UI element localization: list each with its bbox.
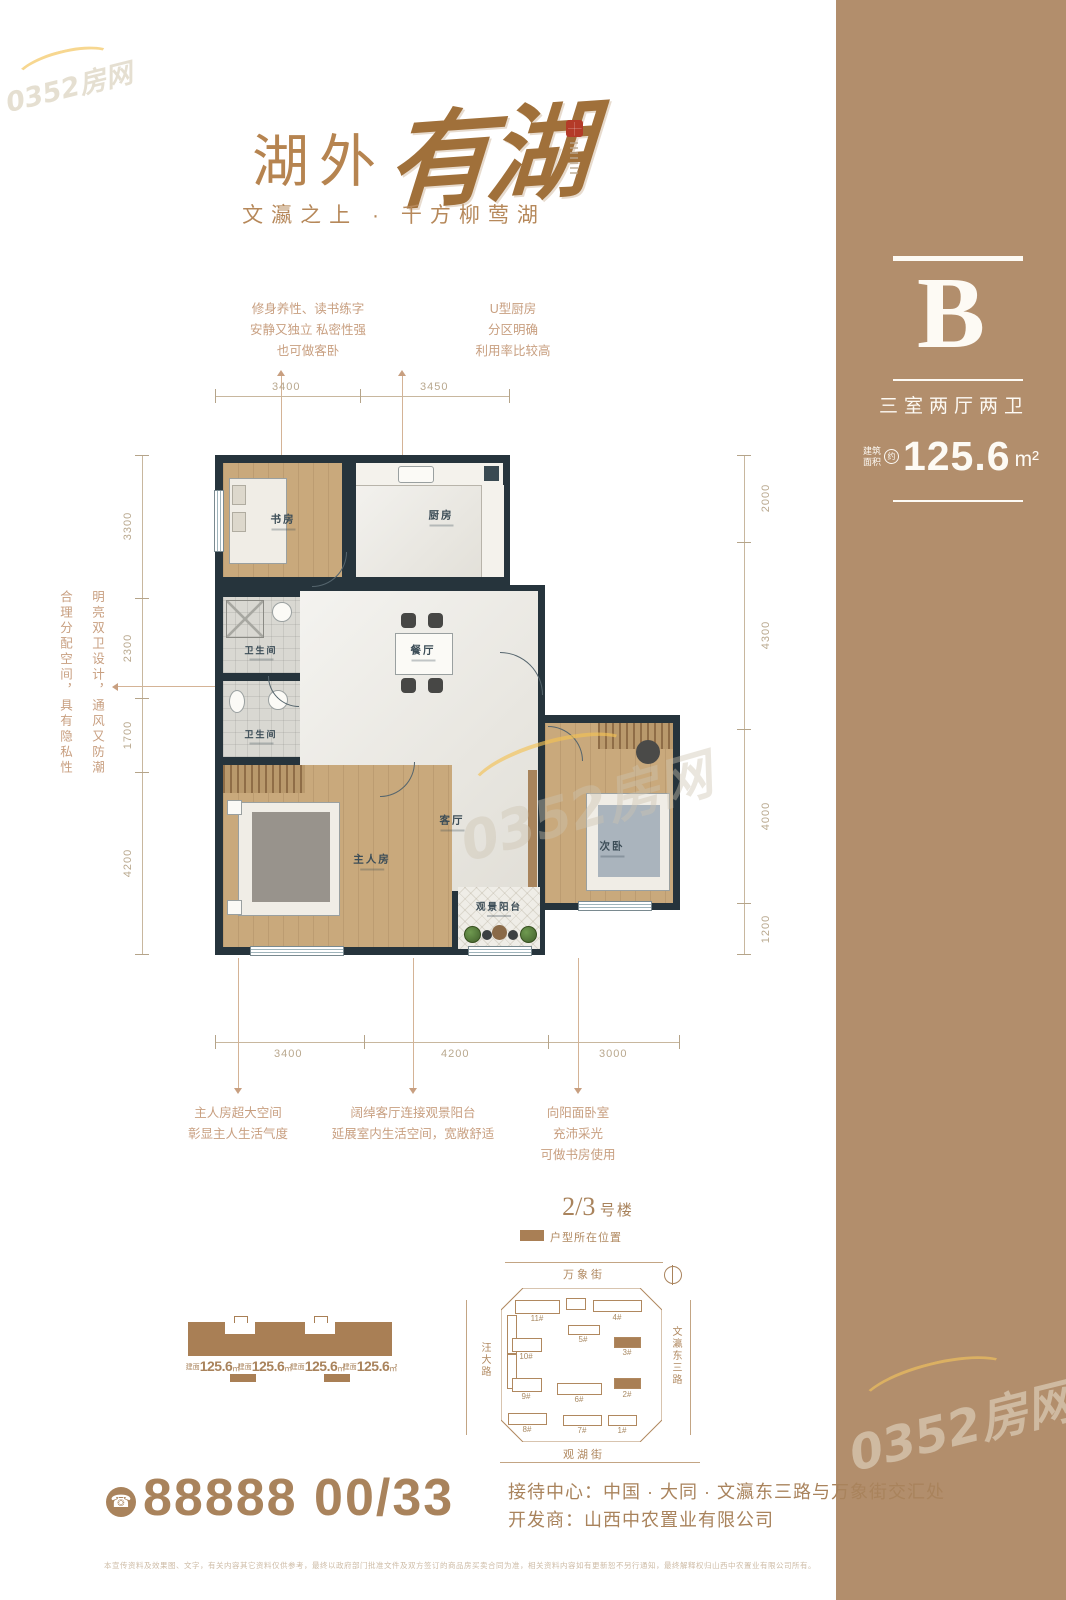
building: [508, 1413, 547, 1425]
dim-right-3: 1200: [760, 915, 772, 943]
annotation-line: 利用率比较高: [448, 341, 578, 362]
blanket: [252, 812, 330, 902]
annotation-arrow: [112, 683, 118, 691]
dim-tick: [737, 903, 751, 904]
disclaimer-text: 本宣传资料及效果图、文字，有关内容其它资料仅供参考，最终以政府部门批准文件及双方…: [104, 1560, 834, 1571]
dim-top-0: 3400: [272, 381, 300, 393]
nightstand-icon: [227, 800, 242, 815]
dim-tick: [679, 1035, 680, 1049]
room-label-bedroom2: 次卧: [600, 839, 625, 858]
dim-tick: [135, 598, 149, 599]
dim-tick: [737, 729, 751, 730]
dim-line-right: [744, 455, 745, 955]
watermark: 0352房网: [1, 51, 136, 120]
dim-left-2: 1700: [122, 721, 134, 749]
window-icon: [468, 946, 532, 956]
plant-icon: [464, 926, 481, 943]
area-label-line1: 建筑: [863, 446, 881, 457]
annotation-bedroom: 向阳面卧室 充沛采光 可做书房使用: [513, 1103, 643, 1166]
dim-bottom-1: 4200: [441, 1048, 469, 1060]
building: [566, 1298, 586, 1310]
elevation-tab: [314, 1316, 328, 1323]
building: [557, 1383, 602, 1395]
dim-right-1: 4300: [760, 621, 772, 649]
seal-stamp-icon: [566, 120, 583, 137]
area-value: 125.6: [903, 433, 1011, 480]
elevation-area-value: 125.6: [252, 1358, 285, 1374]
street-name-top: 万象街: [505, 1266, 663, 1282]
plant-icon: [520, 926, 537, 943]
wardrobe-icon: [598, 723, 673, 749]
annotation-line: 分区明确: [448, 320, 578, 341]
balcony-chair-icon: [508, 930, 518, 940]
dim-left-0: 3300: [122, 512, 134, 540]
kitchen-column: [481, 485, 504, 577]
building-highlighted: [614, 1337, 641, 1348]
dim-right-2: 4000: [760, 802, 772, 830]
window-icon: [578, 901, 652, 911]
annotation-leader: [238, 958, 239, 1088]
elevation-area-prefix: 建面: [291, 1364, 305, 1371]
sidebar-rule-thin: [893, 500, 1023, 502]
street-name-left: 汪大路: [477, 1342, 492, 1378]
building-label: 10#: [519, 1352, 532, 1361]
logo-title-prefix: 湖外: [252, 116, 386, 198]
kitchen-sink-icon: [398, 466, 434, 483]
round-chair-icon: [636, 740, 660, 764]
dim-tick: [737, 954, 751, 955]
siteplan-legend-label: 户型所在位置: [550, 1229, 622, 1245]
balcony-chair-icon: [482, 930, 492, 940]
reception-address: 接待中心：中国 · 大同 · 文瀛东三路与万象街交汇处: [508, 1478, 945, 1504]
dim-tick: [215, 389, 216, 403]
room-label-master: 主人房: [353, 852, 391, 871]
poster-page: 0352房网 0352房网 0352房网 B 三室两厅两卫 建筑 面积 约 12…: [0, 0, 1066, 1600]
elevation-area-value: 125.6: [305, 1358, 338, 1374]
seal-caption: [570, 142, 578, 176]
dim-line-bottom: [215, 1042, 680, 1043]
dim-line-left: [142, 455, 143, 955]
area-label-line2: 面积: [863, 457, 881, 468]
unit-letter: B: [836, 258, 1066, 370]
annotation-line: 也可做客卧: [218, 341, 398, 362]
elevation-base: [230, 1374, 256, 1382]
street-line-right: [690, 1300, 691, 1435]
street-line-left: [466, 1300, 467, 1435]
elevation-area-value: 125.6: [200, 1358, 233, 1374]
wardrobe-icon: [223, 765, 305, 793]
building-label: 3#: [623, 1348, 632, 1357]
annotation-arrow: [574, 1088, 582, 1094]
elevation-notch: [305, 1322, 335, 1334]
chair-icon: [428, 678, 443, 693]
dim-tick: [360, 389, 361, 403]
pillow-icon: [232, 512, 246, 532]
building: [512, 1338, 542, 1352]
toilet-icon: [229, 690, 245, 713]
street-line-bottom: [500, 1462, 700, 1463]
dim-top-1: 3450: [420, 381, 448, 393]
building-label: 4#: [613, 1313, 622, 1322]
balcony-table-icon: [492, 925, 507, 940]
building: [593, 1300, 642, 1312]
dim-tick: [135, 698, 149, 699]
building-label: 5#: [579, 1335, 588, 1344]
annotation-leader: [118, 686, 222, 687]
dim-tick: [737, 542, 751, 543]
pillow-icon: [232, 485, 246, 505]
elevation-area-prefix: 建面: [238, 1364, 252, 1371]
dim-left-1: 2300: [122, 634, 134, 662]
annotation-study: 修身养性、读书练字 安静又独立 私密性强 也可做客卧: [218, 299, 398, 362]
building: [515, 1300, 560, 1314]
elevation-area-value: 125.6: [357, 1358, 390, 1374]
street-name-right: 文瀛东三路: [668, 1326, 683, 1386]
unit-area: 建筑 面积 约 125.6 m²: [836, 433, 1066, 480]
dim-tick: [135, 455, 149, 456]
watermark-swoosh-icon: [11, 38, 119, 98]
room-label-study: 书房: [271, 512, 296, 531]
dim-bottom-0: 3400: [274, 1048, 302, 1060]
annotation-baths-col2: 合理分配空间，具有隐私性: [56, 590, 75, 810]
sidebar-rule-thin: [893, 379, 1023, 381]
dim-tick: [135, 772, 149, 773]
building-label: 6#: [575, 1395, 584, 1404]
unit-type: 三室两厅两卫: [836, 391, 1066, 418]
chair-icon: [401, 678, 416, 693]
room-label-dining: 餐厅: [411, 643, 436, 662]
building-label: 7#: [578, 1426, 587, 1435]
sink-icon: [272, 602, 292, 622]
annotation-line: U型厨房: [448, 299, 578, 320]
siteplan-title: 2/3 号楼: [498, 1192, 698, 1222]
annotation-arrow: [409, 1088, 417, 1094]
window-icon: [250, 946, 344, 956]
area-unit: m²: [1015, 448, 1040, 472]
building: [568, 1325, 600, 1335]
annotation-line: 可做书房使用: [513, 1145, 643, 1166]
fridge-icon: [484, 466, 499, 481]
annotation-line: 阔绰客厅连接观景阳台: [298, 1103, 528, 1124]
room-label-living: 客厅: [440, 813, 465, 832]
developer-name: 开发商：山西中农置业有限公司: [508, 1506, 774, 1532]
elevation-area-prefix: 建面: [343, 1364, 357, 1371]
compass-icon: [664, 1266, 682, 1284]
logo-subtitle: 文瀛之上 · 千方柳莺湖: [238, 199, 550, 229]
window-icon: [214, 490, 224, 552]
elevation-unit-area: 建面125.6㎡: [343, 1358, 398, 1376]
dim-bottom-2: 3000: [599, 1048, 627, 1060]
dim-line-top: [215, 396, 510, 397]
chair-icon: [428, 613, 443, 628]
room-label-balcony: 观景阳台: [476, 899, 522, 917]
building-label: 2#: [623, 1390, 632, 1399]
building: [563, 1415, 602, 1426]
dim-tick: [135, 954, 149, 955]
dim-tick: [509, 389, 510, 403]
building: [512, 1378, 542, 1392]
annotation-baths-col1: 明亮双卫设计，通风又防潮: [88, 590, 107, 810]
elevation-base: [324, 1374, 350, 1382]
elevation-tab: [234, 1316, 248, 1323]
dim-tick: [737, 455, 751, 456]
building-highlighted: [614, 1378, 641, 1389]
annotation-line: 向阳面卧室: [513, 1103, 643, 1124]
annotation-arrow: [234, 1088, 242, 1094]
room-label-bath2: 卫生间: [244, 728, 277, 745]
building: [608, 1415, 637, 1426]
annotation-living: 阔绰客厅连接观景阳台 延展室内生活空间，宽敞舒适: [298, 1103, 528, 1145]
annotation-line: 修身养性、读书练字: [218, 299, 398, 320]
siteplan-title-suffix: 号楼: [600, 1202, 634, 1219]
dim-right-0: 2000: [760, 484, 772, 512]
siteplan-title-num: 2/3: [562, 1192, 595, 1221]
approx-badge: 约: [884, 449, 899, 464]
room-label-kitchen: 厨房: [429, 508, 454, 527]
elevation-area-unit: ㎡: [389, 1364, 397, 1373]
dim-tick: [548, 1035, 549, 1049]
building-label: 9#: [522, 1392, 531, 1401]
annotation-line: 安静又独立 私密性强: [218, 320, 398, 341]
nightstand-icon: [227, 900, 242, 915]
annotation-kitchen: U型厨房 分区明确 利用率比较高: [448, 299, 578, 362]
building-label: 1#: [618, 1426, 627, 1435]
annotation-leader: [413, 958, 414, 1088]
elevation-notch: [225, 1322, 255, 1334]
dim-tick: [364, 1035, 365, 1049]
annotation-leader: [578, 958, 579, 1088]
building-label: 11#: [531, 1314, 544, 1323]
phone-icon: ☎: [106, 1487, 136, 1517]
area-label: 建筑 面积: [863, 446, 881, 468]
room-label-bath1: 卫生间: [244, 644, 277, 661]
siteplan-legend-swatch: [520, 1230, 544, 1241]
annotation-line: 延展室内生活空间，宽敞舒适: [298, 1124, 528, 1145]
unit-info-sidebar: B 三室两厅两卫 建筑 面积 约 125.6 m²: [836, 0, 1066, 1600]
elevation-area-prefix: 建面: [186, 1364, 200, 1371]
street-name-bottom: 观湖街: [505, 1446, 663, 1462]
building-label: 8#: [523, 1425, 532, 1434]
dim-left-3: 4200: [122, 849, 134, 877]
tv-cabinet: [528, 770, 537, 888]
phone-number: 88888 00/33: [143, 1468, 454, 1528]
annotation-line: 充沛采光: [513, 1124, 643, 1145]
street-line-top: [505, 1262, 663, 1263]
chair-icon: [401, 613, 416, 628]
dim-tick: [215, 1035, 216, 1049]
shower-icon: [226, 600, 264, 638]
building-elevation: [188, 1322, 392, 1356]
